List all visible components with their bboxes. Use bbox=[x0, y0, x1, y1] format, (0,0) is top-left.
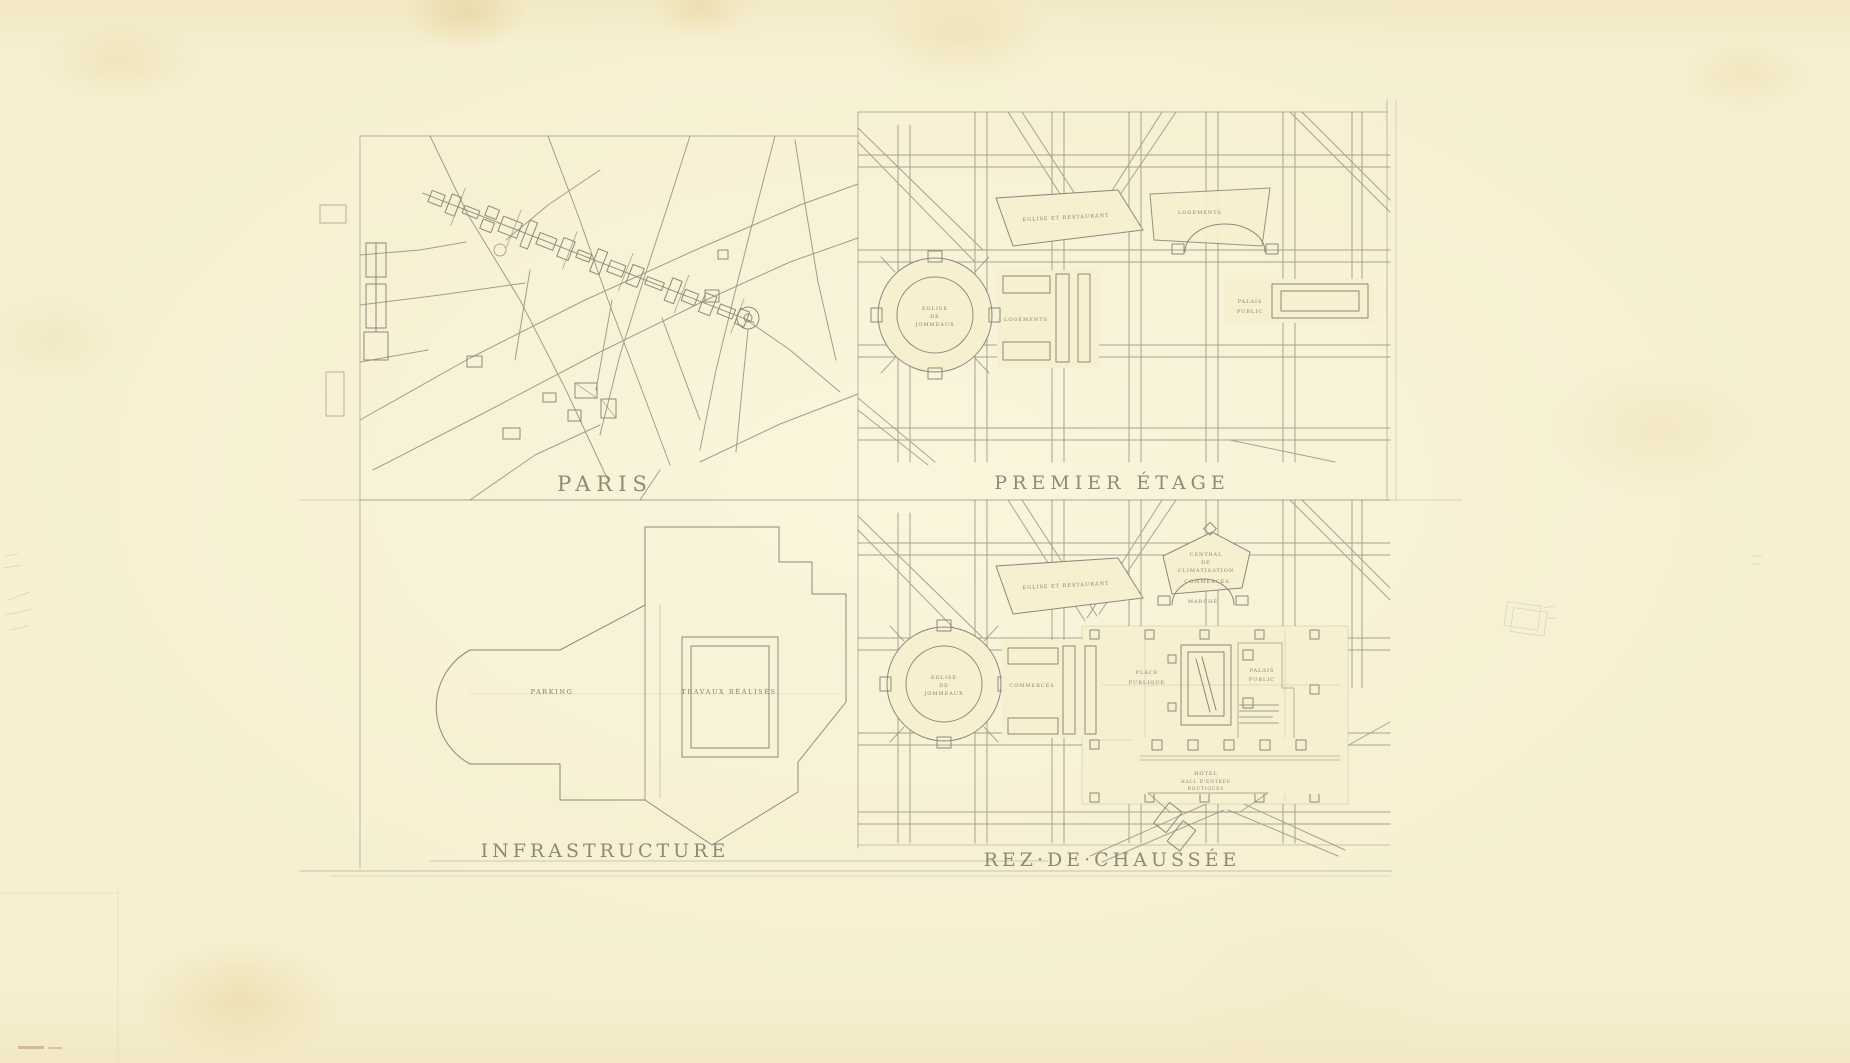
logements-nord-label: LOGEMENTS bbox=[1178, 210, 1222, 216]
central-label-3: CLIMATISATION bbox=[1178, 568, 1234, 574]
palais-label-2: PUBLIC bbox=[1237, 309, 1263, 315]
infrastructure-panel: PARKING TRAVAUX RÉALISÉS bbox=[436, 527, 846, 845]
logements-centre-label: LOGEMENTS bbox=[1004, 317, 1048, 323]
hotel-label-3: BOUTIQUES bbox=[1188, 786, 1224, 791]
corner-stamp bbox=[18, 1046, 62, 1049]
paris-built-axis bbox=[415, 174, 761, 341]
infrastructure-title: INFRASTRUCTURE bbox=[481, 840, 730, 862]
plan-drawing: EGLISE ET RESTAURANT LOGEMENTS LOGEMENTS… bbox=[0, 0, 1850, 1063]
rez-de-chaussee-panel: EGLISE ET RESTAURANT CENTRAL DE CLIMATIS… bbox=[858, 500, 1390, 862]
central-label-1: CENTRAL bbox=[1190, 552, 1223, 558]
right-margin-sketch bbox=[1503, 600, 1558, 638]
central-label-2: DE bbox=[1201, 560, 1211, 566]
premier-etage-panel: EGLISE ET RESTAURANT LOGEMENTS LOGEMENTS… bbox=[858, 112, 1390, 465]
parking-label: PARKING bbox=[531, 688, 574, 696]
rez-de-chaussee-title: REZ·DE·CHAUSSÉE bbox=[984, 848, 1241, 871]
corner-crease-lines bbox=[0, 888, 118, 1063]
commerces-centre-mask bbox=[1002, 640, 1102, 738]
hotel-mask bbox=[1132, 738, 1347, 794]
left-margin-scribbles bbox=[4, 554, 32, 630]
rdc-palais-label-2: PUBLIC bbox=[1249, 677, 1275, 683]
infrastructure-outline bbox=[436, 527, 846, 845]
paris-building-clusters bbox=[320, 205, 759, 439]
rdc-church-label-2: DE bbox=[939, 683, 949, 689]
church-label-2: DE bbox=[930, 314, 940, 320]
church-plan: EGLISE DE JOMMEAUX bbox=[871, 251, 1000, 379]
marginalia bbox=[0, 554, 1762, 1063]
paris-map-panel bbox=[320, 136, 858, 500]
place-label-2: PUBLIQUE bbox=[1129, 680, 1165, 686]
travaux-label: TRAVAUX RÉALISÉS bbox=[681, 687, 776, 696]
rdc-palais-label-1: PALAIS bbox=[1250, 668, 1275, 674]
logements-nord-block bbox=[1150, 188, 1270, 246]
commerces-nord-label: COMMERCES bbox=[1184, 579, 1229, 585]
church-label-1: EGLISE bbox=[922, 306, 948, 312]
premier-etage-title: PREMIER ÉTAGE bbox=[994, 471, 1229, 494]
church-label-3: JOMMEAUX bbox=[914, 322, 954, 328]
rdc-church-label-3: JOMMEAUX bbox=[923, 691, 963, 697]
marche-label: MARCHÉ bbox=[1188, 597, 1218, 605]
commerces-centre-label: COMMERCES bbox=[1009, 683, 1054, 689]
hotel-label-1: HOTEL bbox=[1194, 771, 1218, 777]
rdc-church-plan: EGLISE DE JOMMEAUX bbox=[880, 620, 1009, 748]
palais-label-1: PALAIS bbox=[1238, 299, 1263, 305]
hotel-label-2: HALL D'ENTRÉE bbox=[1181, 779, 1231, 784]
hotel-annex-blocks bbox=[1150, 802, 1200, 851]
right-margin-marks bbox=[1752, 556, 1762, 564]
place-label-1: PLACE bbox=[1136, 670, 1159, 676]
drawing-sheet: EGLISE ET RESTAURANT LOGEMENTS LOGEMENTS… bbox=[0, 0, 1850, 1063]
rdc-church-label-1: EGLISE bbox=[931, 675, 957, 681]
paris-street-network bbox=[360, 136, 858, 500]
paris-title: PARIS bbox=[557, 472, 653, 496]
